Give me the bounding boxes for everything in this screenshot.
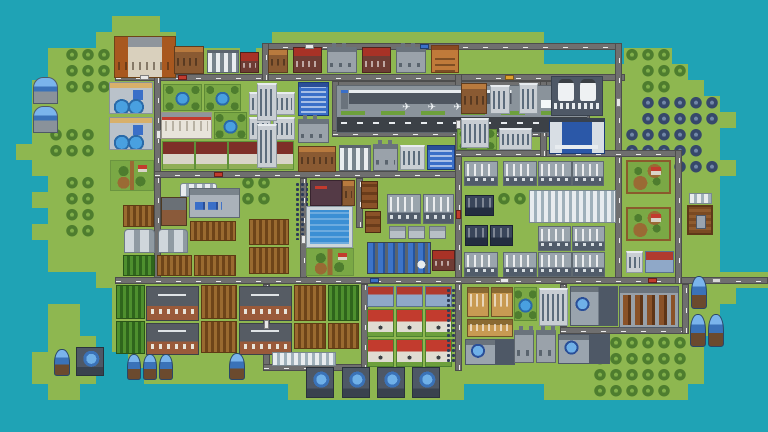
tile-water[interactable] [656, 16, 672, 32]
tile-water[interactable] [704, 80, 720, 96]
tile-water[interactable] [720, 16, 736, 32]
tile-water[interactable] [352, 0, 368, 16]
tile-water[interactable] [16, 320, 32, 336]
tile-tree[interactable] [656, 336, 672, 352]
tile-water[interactable] [48, 288, 64, 304]
tile-water[interactable] [16, 304, 32, 320]
building-pump-station[interactable] [306, 367, 334, 398]
tile-water[interactable] [368, 16, 384, 32]
tile-tree[interactable] [672, 336, 688, 352]
tile-water[interactable] [256, 400, 272, 416]
building-greenhouse[interactable] [272, 352, 336, 366]
tile-water[interactable] [240, 400, 256, 416]
tile-grass[interactable] [480, 368, 496, 384]
tile-water[interactable] [752, 352, 768, 368]
building-clinic[interactable] [499, 128, 532, 150]
tile-water[interactable] [736, 176, 752, 192]
tile-grass[interactable] [208, 368, 224, 384]
tile-tree[interactable] [80, 80, 96, 96]
tile-water[interactable] [336, 0, 352, 16]
tile-water[interactable] [256, 16, 272, 32]
tile-water[interactable] [32, 176, 48, 192]
tile-grass[interactable] [496, 208, 512, 224]
building-factory[interactable] [558, 334, 610, 364]
tile-water[interactable] [16, 272, 32, 288]
tile-water[interactable] [656, 0, 672, 16]
tile-water[interactable] [752, 416, 768, 432]
building-park[interactable] [306, 248, 354, 276]
tile-water[interactable] [560, 16, 576, 32]
tile-water[interactable] [176, 416, 192, 432]
tile-water[interactable] [448, 400, 464, 416]
tile-water[interactable] [736, 224, 752, 240]
tile-water[interactable] [64, 400, 80, 416]
tile-grass[interactable] [640, 192, 656, 208]
tile-water[interactable] [272, 16, 288, 32]
tile-water[interactable] [80, 320, 96, 336]
building-office-small[interactable] [626, 251, 643, 273]
building-refinery[interactable] [619, 286, 679, 328]
tile-water[interactable] [672, 32, 688, 48]
building-warehouse[interactable] [503, 252, 537, 277]
tile-grass[interactable] [576, 384, 592, 400]
tile-water[interactable] [48, 416, 64, 432]
tile-water[interactable] [384, 416, 400, 432]
tile-grass[interactable] [160, 176, 176, 192]
tile-grass[interactable] [80, 160, 96, 176]
tile-water[interactable] [752, 80, 768, 96]
tile-water[interactable] [224, 400, 240, 416]
building-crop-field[interactable] [190, 221, 236, 241]
tile-water[interactable] [0, 176, 16, 192]
tile-water[interactable] [704, 48, 720, 64]
tile-water[interactable] [512, 16, 528, 32]
tile-water[interactable] [736, 208, 752, 224]
building-town-hall[interactable] [161, 112, 212, 139]
tile-water[interactable] [32, 32, 48, 48]
tile-water[interactable] [464, 384, 480, 400]
tile-grass[interactable] [64, 160, 80, 176]
tile-water[interactable] [0, 80, 16, 96]
building-crop-field[interactable] [123, 205, 154, 227]
tile-grass[interactable] [272, 176, 288, 192]
tile-grass[interactable] [48, 192, 64, 208]
tile-grass[interactable] [480, 48, 496, 64]
building-farm-cottage[interactable] [367, 309, 394, 337]
tile-water[interactable] [480, 416, 496, 432]
tile-water[interactable] [736, 416, 752, 432]
tile-water[interactable] [368, 416, 384, 432]
tile-grass[interactable] [448, 384, 464, 400]
tile-grass[interactable] [704, 240, 720, 256]
tile-water[interactable] [80, 16, 96, 32]
tile-grass[interactable] [720, 112, 736, 128]
tile-water[interactable] [32, 48, 48, 64]
tile-water[interactable] [64, 16, 80, 32]
tile-water[interactable] [752, 64, 768, 80]
building-warehouse[interactable] [464, 161, 498, 186]
building-crop-field[interactable] [201, 285, 237, 319]
tile-water[interactable] [592, 0, 608, 16]
tile-water[interactable] [224, 16, 240, 32]
road[interactable] [115, 277, 768, 284]
tile-water[interactable] [480, 400, 496, 416]
tile-water[interactable] [416, 400, 432, 416]
tile-water[interactable] [32, 208, 48, 224]
tile-grass[interactable] [128, 16, 144, 32]
tile-water[interactable] [0, 0, 16, 16]
tile-water[interactable] [176, 400, 192, 416]
tile-water[interactable] [528, 16, 544, 32]
tile-water[interactable] [16, 352, 32, 368]
tile-water[interactable] [16, 80, 32, 96]
tile-bush[interactable] [640, 96, 656, 112]
tile-water[interactable] [592, 48, 608, 64]
tile-bush[interactable] [688, 112, 704, 128]
tile-water[interactable] [320, 416, 336, 432]
tile-grass[interactable] [560, 368, 576, 384]
building-blue-house[interactable] [645, 251, 674, 273]
tile-water[interactable] [272, 0, 288, 16]
building-crop-field[interactable] [328, 323, 359, 349]
tile-grass[interactable] [32, 368, 48, 384]
tile-tree[interactable] [608, 352, 624, 368]
tile-water[interactable] [720, 400, 736, 416]
tile-tree[interactable] [640, 368, 656, 384]
tile-water[interactable] [688, 400, 704, 416]
building-warehouse[interactable] [538, 226, 571, 251]
building-farm-cottage[interactable] [396, 309, 423, 337]
tile-water[interactable] [752, 336, 768, 352]
tile-water[interactable] [16, 176, 32, 192]
tile-water[interactable] [704, 400, 720, 416]
building-warehouse[interactable] [572, 252, 605, 277]
tile-water[interactable] [416, 416, 432, 432]
tile-water[interactable] [0, 256, 16, 272]
tile-water[interactable] [688, 0, 704, 16]
tile-water[interactable] [144, 400, 160, 416]
tile-water[interactable] [0, 384, 16, 400]
tile-water[interactable] [208, 0, 224, 16]
tile-water[interactable] [464, 0, 480, 16]
building-farm-pen[interactable] [687, 205, 713, 235]
building-apartment[interactable] [491, 287, 513, 317]
tile-water[interactable] [752, 16, 768, 32]
tile-water[interactable] [752, 384, 768, 400]
tile-water[interactable] [736, 240, 752, 256]
building-office-building[interactable] [539, 288, 568, 326]
building-warehouse[interactable] [503, 161, 537, 186]
building-warehouse[interactable] [538, 161, 572, 186]
tile-tree[interactable] [640, 336, 656, 352]
building-crop-field[interactable] [249, 247, 289, 274]
tile-water[interactable] [576, 16, 592, 32]
building-castle[interactable] [114, 36, 176, 78]
building-pond-park[interactable] [514, 287, 537, 321]
tile-water[interactable] [272, 384, 288, 400]
building-warehouse[interactable] [387, 194, 421, 224]
building-farmhouse[interactable] [239, 286, 292, 321]
tile-water[interactable] [752, 240, 768, 256]
tile-water[interactable] [64, 0, 80, 16]
tile-water[interactable] [0, 144, 16, 160]
tile-water[interactable] [64, 288, 80, 304]
building-water-tower[interactable] [54, 349, 70, 376]
tile-grass[interactable] [32, 144, 48, 160]
tile-tree[interactable] [80, 176, 96, 192]
tile-water[interactable] [752, 32, 768, 48]
tile-water[interactable] [752, 176, 768, 192]
tile-water[interactable] [48, 16, 64, 32]
tile-water[interactable] [240, 0, 256, 16]
tile-water[interactable] [736, 160, 752, 176]
tile-water[interactable] [64, 416, 80, 432]
building-red-shop[interactable] [362, 47, 391, 73]
tile-water[interactable] [208, 32, 224, 48]
tile-water[interactable] [736, 384, 752, 400]
tile-water[interactable] [608, 416, 624, 432]
tile-water[interactable] [160, 384, 176, 400]
building-office-building[interactable] [257, 83, 277, 121]
tile-water[interactable] [256, 384, 272, 400]
building-treatment-plant[interactable] [109, 117, 153, 150]
tile-water[interactable] [496, 16, 512, 32]
building-small-factory[interactable] [396, 47, 426, 73]
tile-water[interactable] [720, 144, 736, 160]
tile-water[interactable] [32, 336, 48, 352]
tile-tree[interactable] [96, 64, 112, 80]
tile-water[interactable] [736, 16, 752, 32]
tile-water[interactable] [720, 128, 736, 144]
tile-tree[interactable] [656, 384, 672, 400]
building-house[interactable] [195, 141, 228, 170]
tile-tree[interactable] [656, 368, 672, 384]
tile-water[interactable] [0, 240, 16, 256]
tile-water[interactable] [496, 0, 512, 16]
tile-bush[interactable] [672, 96, 688, 112]
tile-grass[interactable] [192, 240, 208, 256]
tile-water[interactable] [16, 416, 32, 432]
building-blue-house[interactable] [367, 286, 394, 307]
tile-water[interactable] [16, 96, 32, 112]
tile-grass[interactable] [48, 304, 64, 320]
tile-water[interactable] [608, 0, 624, 16]
tile-water[interactable] [688, 16, 704, 32]
building-pump-station[interactable] [76, 347, 104, 376]
tile-grass[interactable] [624, 112, 640, 128]
tile-water[interactable] [736, 128, 752, 144]
tile-grass[interactable] [688, 352, 704, 368]
tile-water[interactable] [192, 0, 208, 16]
tile-water[interactable] [560, 416, 576, 432]
tile-grass[interactable] [176, 368, 192, 384]
tile-grass[interactable] [208, 352, 224, 368]
tile-water[interactable] [0, 352, 16, 368]
tile-grass[interactable] [528, 48, 544, 64]
tile-water[interactable] [752, 160, 768, 176]
building-farmhouse[interactable] [146, 286, 199, 321]
tile-bush[interactable] [640, 112, 656, 128]
building-pump-station[interactable] [412, 367, 440, 398]
tile-water[interactable] [96, 0, 112, 16]
building-grain-silos[interactable] [158, 229, 188, 253]
tile-grass[interactable] [496, 368, 512, 384]
tile-water[interactable] [720, 304, 736, 320]
tile-water[interactable] [144, 416, 160, 432]
tile-grass[interactable] [544, 368, 560, 384]
tile-bush[interactable] [672, 128, 688, 144]
tile-grass[interactable] [80, 96, 96, 112]
tile-water[interactable] [448, 16, 464, 32]
building-shop[interactable] [342, 180, 355, 206]
tile-water[interactable] [0, 192, 16, 208]
tile-tree[interactable] [64, 176, 80, 192]
tile-water[interactable] [320, 0, 336, 16]
tile-water[interactable] [528, 0, 544, 16]
tile-grass[interactable] [624, 192, 640, 208]
tile-grass[interactable] [64, 304, 80, 320]
tile-water[interactable] [576, 0, 592, 16]
tile-water[interactable] [752, 304, 768, 320]
building-factory[interactable] [570, 286, 618, 326]
tile-water[interactable] [352, 16, 368, 32]
tile-grass[interactable] [656, 192, 672, 208]
tile-water[interactable] [496, 416, 512, 432]
tile-water[interactable] [16, 208, 32, 224]
tile-water[interactable] [352, 400, 368, 416]
tile-water[interactable] [672, 48, 688, 64]
tile-water[interactable] [32, 384, 48, 400]
tile-water[interactable] [240, 416, 256, 432]
building-shop[interactable] [174, 46, 204, 74]
tile-water[interactable] [16, 0, 32, 16]
building-water-tower[interactable] [690, 314, 706, 347]
tile-grass[interactable] [96, 256, 112, 272]
tile-water[interactable] [752, 192, 768, 208]
tile-grass[interactable] [48, 384, 64, 400]
tile-water[interactable] [16, 128, 32, 144]
tile-water[interactable] [720, 208, 736, 224]
tile-water[interactable] [288, 416, 304, 432]
tile-water[interactable] [80, 304, 96, 320]
tile-bush[interactable] [704, 160, 720, 176]
tile-grass[interactable] [80, 112, 96, 128]
tile-tree[interactable] [656, 64, 672, 80]
tile-grass[interactable] [48, 256, 64, 272]
city-map[interactable]: ✈ ✈ ✈ [0, 0, 768, 432]
tile-water[interactable] [656, 32, 672, 48]
tile-water[interactable] [224, 384, 240, 400]
tile-grass[interactable] [704, 128, 720, 144]
tile-tree[interactable] [240, 176, 256, 192]
tile-water[interactable] [80, 0, 96, 16]
building-dark-warehouse[interactable] [465, 195, 494, 216]
tile-water[interactable] [720, 368, 736, 384]
tile-grass[interactable] [352, 240, 368, 256]
tile-water[interactable] [400, 0, 416, 16]
tile-water[interactable] [752, 288, 768, 304]
tile-water[interactable] [144, 384, 160, 400]
tile-grass[interactable] [96, 272, 112, 288]
tile-bush[interactable] [688, 96, 704, 112]
tile-grass[interactable] [16, 144, 32, 160]
tile-grass[interactable] [80, 256, 96, 272]
building-storage-unit[interactable] [408, 226, 425, 239]
tile-water[interactable] [272, 416, 288, 432]
tile-water[interactable] [496, 384, 512, 400]
tile-grass[interactable] [64, 256, 80, 272]
tile-water[interactable] [752, 368, 768, 384]
tile-water[interactable] [544, 400, 560, 416]
tile-water[interactable] [16, 256, 32, 272]
building-greenhouse-small[interactable] [689, 193, 712, 204]
tile-water[interactable] [16, 48, 32, 64]
building-water-tower[interactable] [229, 353, 245, 380]
tile-water[interactable] [592, 416, 608, 432]
building-warehouse[interactable] [572, 226, 605, 251]
tile-water[interactable] [32, 272, 48, 288]
tile-water[interactable] [224, 32, 240, 48]
tile-water[interactable] [16, 16, 32, 32]
tile-tree[interactable] [640, 384, 656, 400]
tile-grass[interactable] [704, 176, 720, 192]
building-office-building[interactable] [461, 118, 489, 148]
tile-tree[interactable] [80, 224, 96, 240]
building-warehouse[interactable] [572, 161, 604, 186]
tile-tree[interactable] [64, 48, 80, 64]
building-farmhouse[interactable] [146, 323, 199, 355]
tile-water[interactable] [32, 416, 48, 432]
tile-water[interactable] [0, 208, 16, 224]
building-grain-silos[interactable] [124, 229, 155, 253]
tile-water[interactable] [704, 384, 720, 400]
tile-water[interactable] [544, 416, 560, 432]
tile-water[interactable] [752, 0, 768, 16]
tile-grass[interactable] [96, 192, 112, 208]
tile-grass[interactable] [48, 320, 64, 336]
tile-tree[interactable] [80, 144, 96, 160]
tile-water[interactable] [736, 0, 752, 16]
tile-bush[interactable] [640, 128, 656, 144]
tile-tree[interactable] [640, 352, 656, 368]
tile-grass[interactable] [48, 240, 64, 256]
tile-water[interactable] [448, 0, 464, 16]
tile-water[interactable] [208, 416, 224, 432]
road[interactable] [560, 327, 689, 334]
tile-water[interactable] [640, 400, 656, 416]
tile-tree[interactable] [640, 48, 656, 64]
building-market-stalls[interactable] [207, 50, 239, 73]
tile-water[interactable] [720, 256, 736, 272]
tile-water[interactable] [192, 400, 208, 416]
tile-water[interactable] [736, 48, 752, 64]
tile-water[interactable] [176, 16, 192, 32]
building-train-station[interactable] [549, 118, 605, 154]
tile-tree[interactable] [640, 80, 656, 96]
building-hotel[interactable] [431, 45, 459, 73]
tile-water[interactable] [736, 368, 752, 384]
road[interactable] [154, 171, 462, 178]
building-power-plant[interactable] [551, 76, 603, 116]
tile-grass[interactable] [416, 176, 432, 192]
tile-water[interactable] [720, 48, 736, 64]
tile-grass[interactable] [512, 368, 528, 384]
tile-water[interactable] [112, 416, 128, 432]
tile-water[interactable] [720, 64, 736, 80]
building-small-factory[interactable] [514, 330, 534, 363]
tile-water[interactable] [576, 48, 592, 64]
tile-water[interactable] [0, 160, 16, 176]
